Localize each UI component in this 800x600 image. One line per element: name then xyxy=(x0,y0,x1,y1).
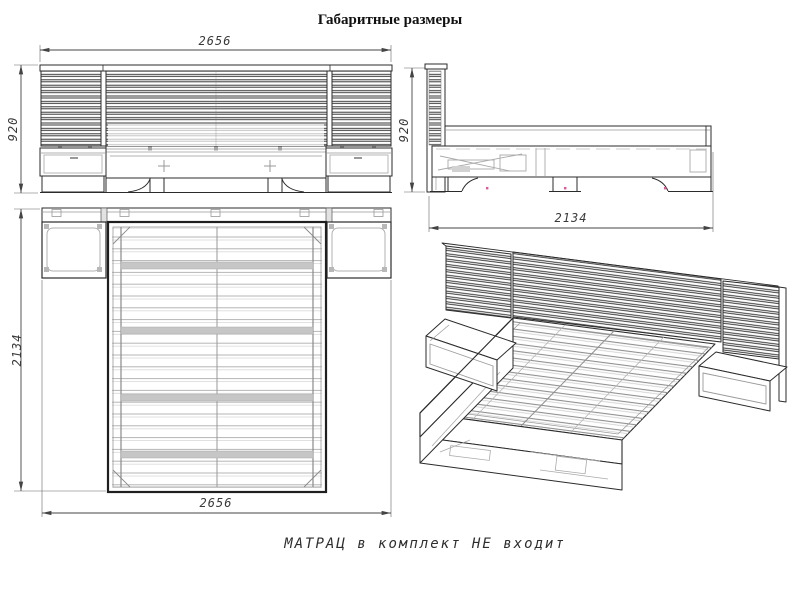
drawing-sheet: Габаритные размеры xyxy=(0,0,800,600)
top-headboard-strip xyxy=(42,208,391,222)
front-height-label: 920 xyxy=(6,117,20,142)
technical-drawing: 2656 920 xyxy=(0,0,800,600)
iso-headboard-post xyxy=(779,287,786,402)
top-nightstand-right xyxy=(327,222,391,278)
front-legs xyxy=(128,178,304,192)
side-bed-frame xyxy=(430,126,713,192)
front-nightstand-left xyxy=(40,148,106,192)
front-view: 2656 920 xyxy=(6,34,392,193)
front-height-dimension: 920 xyxy=(6,65,38,193)
front-width-dimension: 2656 xyxy=(40,34,391,62)
side-height-dimension: 920 xyxy=(397,68,425,192)
front-width-label: 2656 xyxy=(199,34,232,48)
iso-nightstand-right xyxy=(699,352,787,411)
side-snap-marks xyxy=(486,187,666,189)
isometric-view xyxy=(420,243,787,490)
top-nightstand-left xyxy=(42,222,106,278)
mattress-note: МАТРАЦ в комплект НЕ входит xyxy=(25,536,800,552)
side-height-label: 920 xyxy=(397,118,411,143)
side-view: 920 xyxy=(397,64,713,232)
top-depth-label: 2134 xyxy=(10,334,24,367)
side-length-label: 2134 xyxy=(555,211,588,225)
top-view: 2134 xyxy=(10,208,391,517)
top-bed-platform xyxy=(108,222,326,492)
front-nightstand-right xyxy=(326,148,392,192)
top-width-label: 2656 xyxy=(200,496,233,510)
front-headboard xyxy=(40,65,392,151)
